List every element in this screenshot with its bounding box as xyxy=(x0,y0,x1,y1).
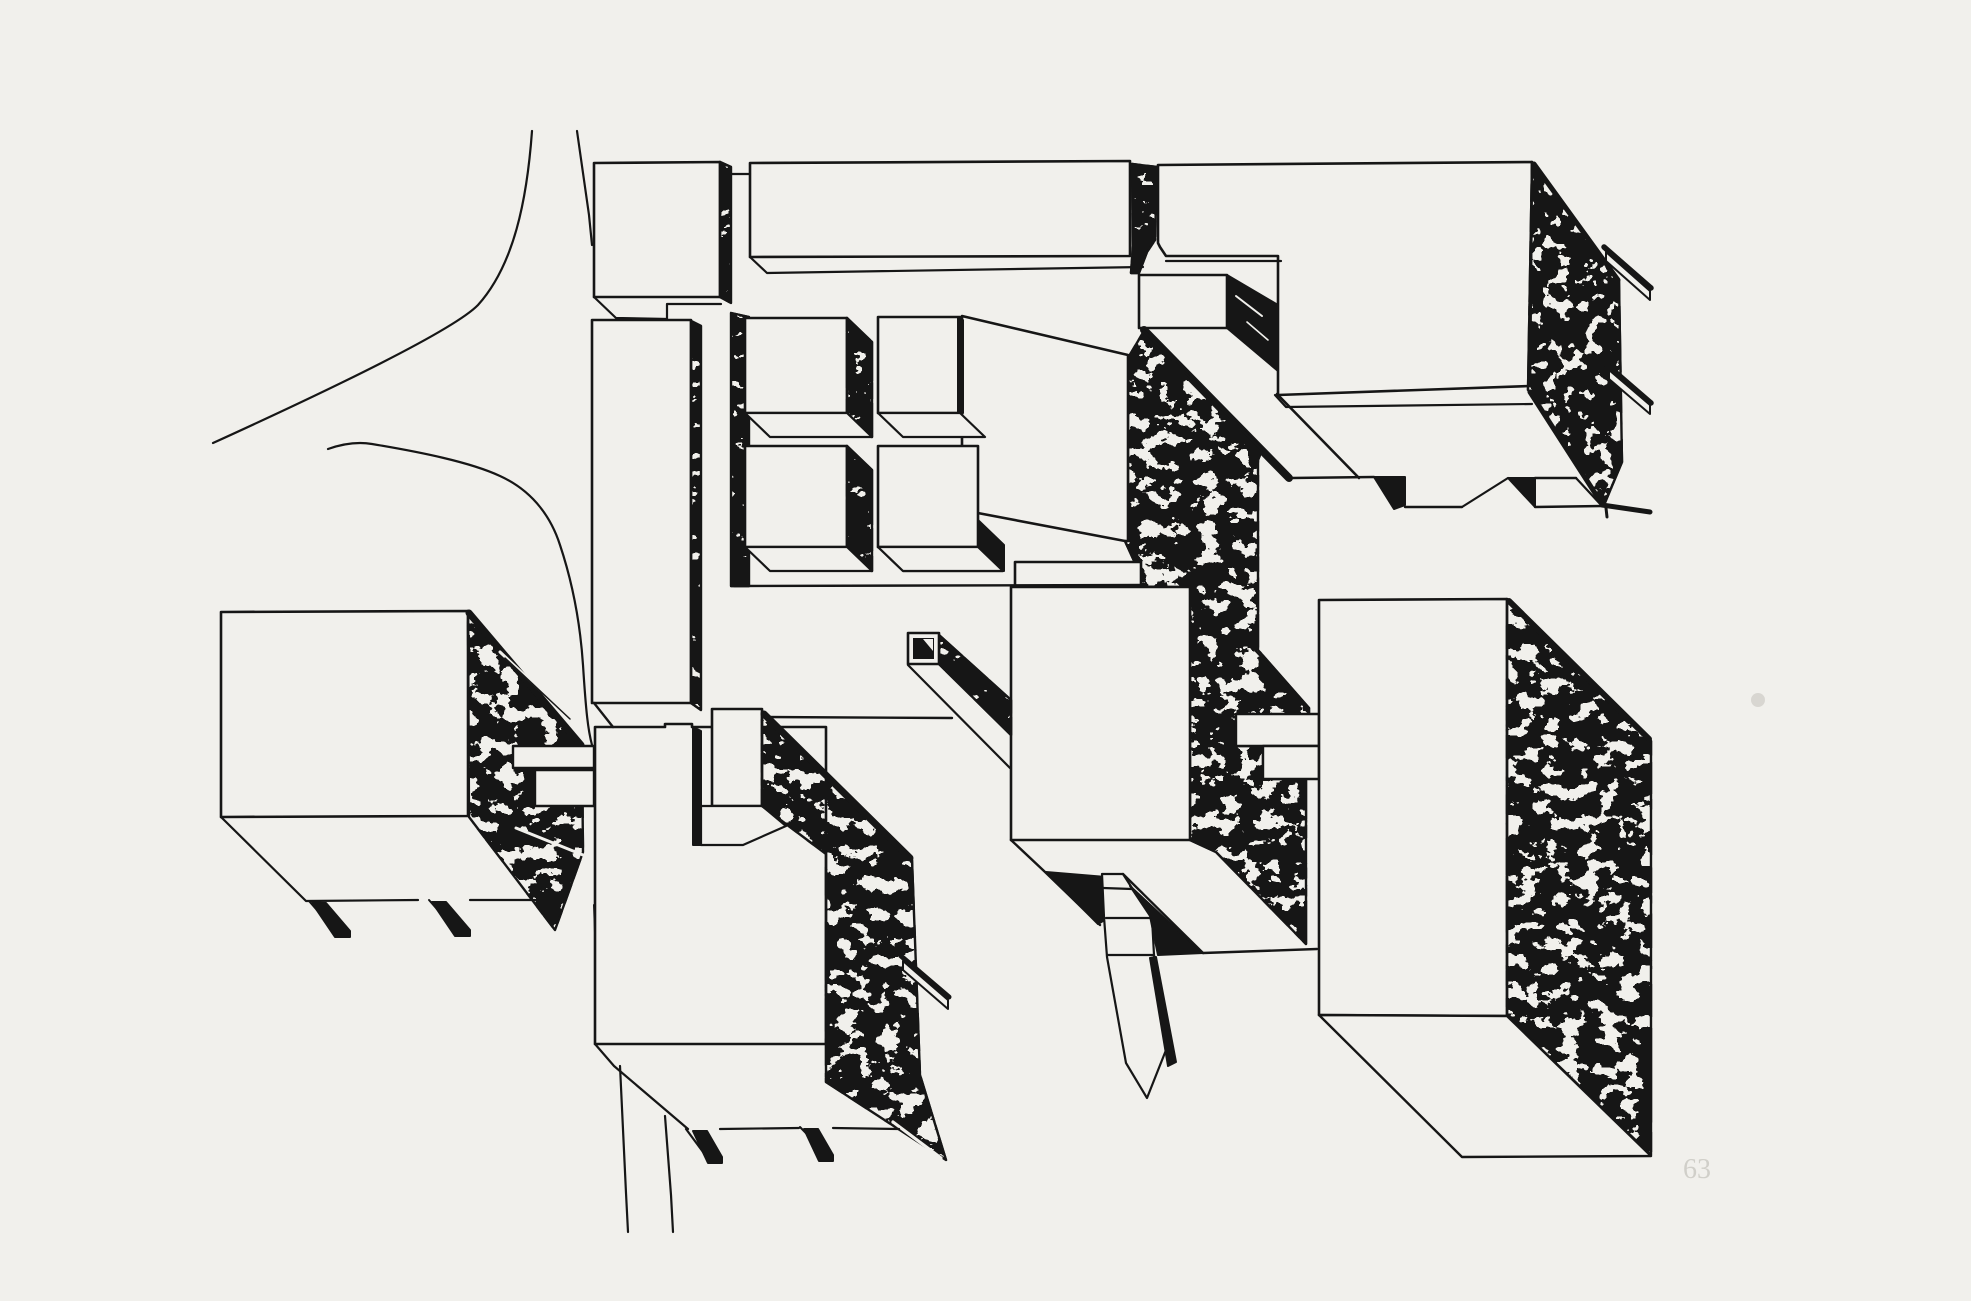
svg-text:63: 63 xyxy=(1683,1154,1711,1185)
